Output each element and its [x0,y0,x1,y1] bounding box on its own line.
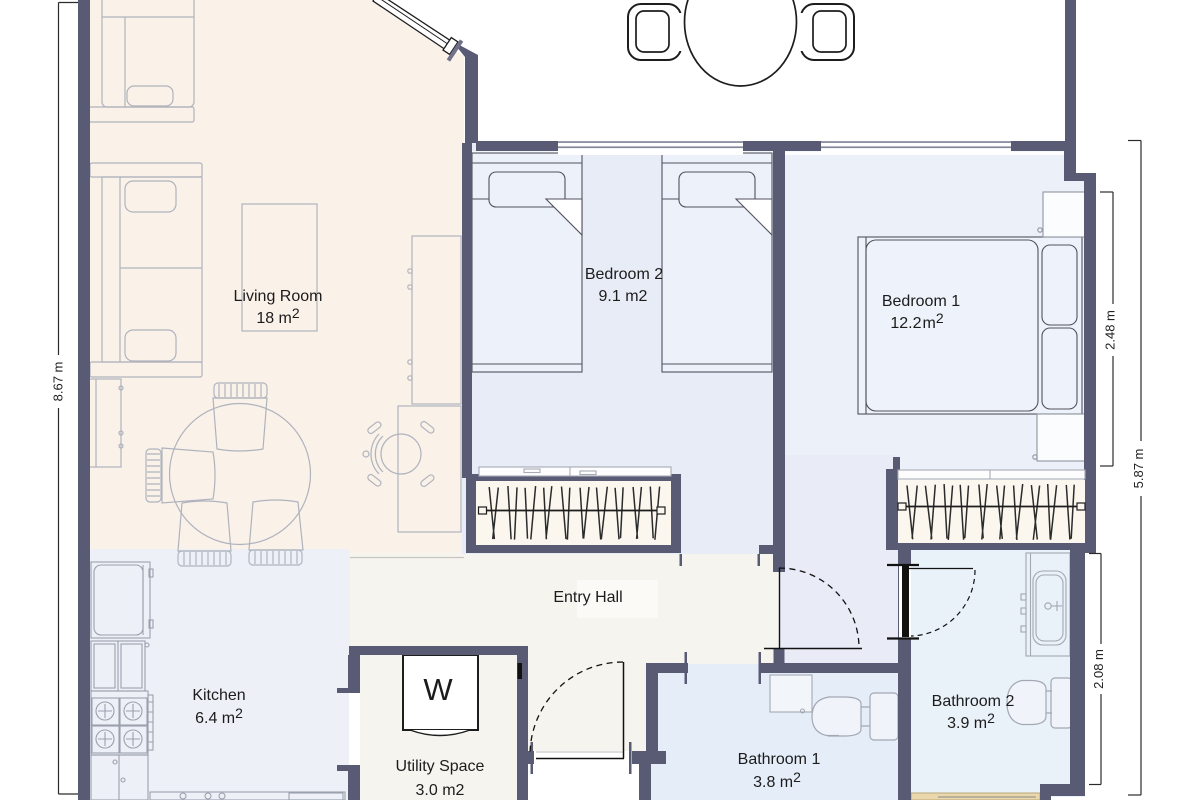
svg-text:Entry Hall: Entry Hall [553,589,622,606]
svg-text:Bedroom 2: Bedroom 2 [585,266,663,283]
svg-text:3.0 m2: 3.0 m2 [416,782,465,799]
svg-text:Kitchen: Kitchen [192,687,245,704]
svg-text:Bedroom 1: Bedroom 1 [882,293,960,310]
svg-text:2.08 m: 2.08 m [1091,649,1106,689]
svg-text:Living Room: Living Room [234,288,323,305]
svg-text:Bathroom 2: Bathroom 2 [932,693,1015,710]
svg-text:Utility Space: Utility Space [396,758,485,775]
svg-text:2.48 m: 2.48 m [1103,310,1118,350]
svg-text:W: W [423,672,453,707]
svg-text:Bathroom 1: Bathroom 1 [738,751,821,768]
svg-text:9.1 m2: 9.1 m2 [599,288,648,305]
svg-text:5.87 m: 5.87 m [1131,449,1146,489]
svg-text:8.67 m: 8.67 m [51,362,66,402]
